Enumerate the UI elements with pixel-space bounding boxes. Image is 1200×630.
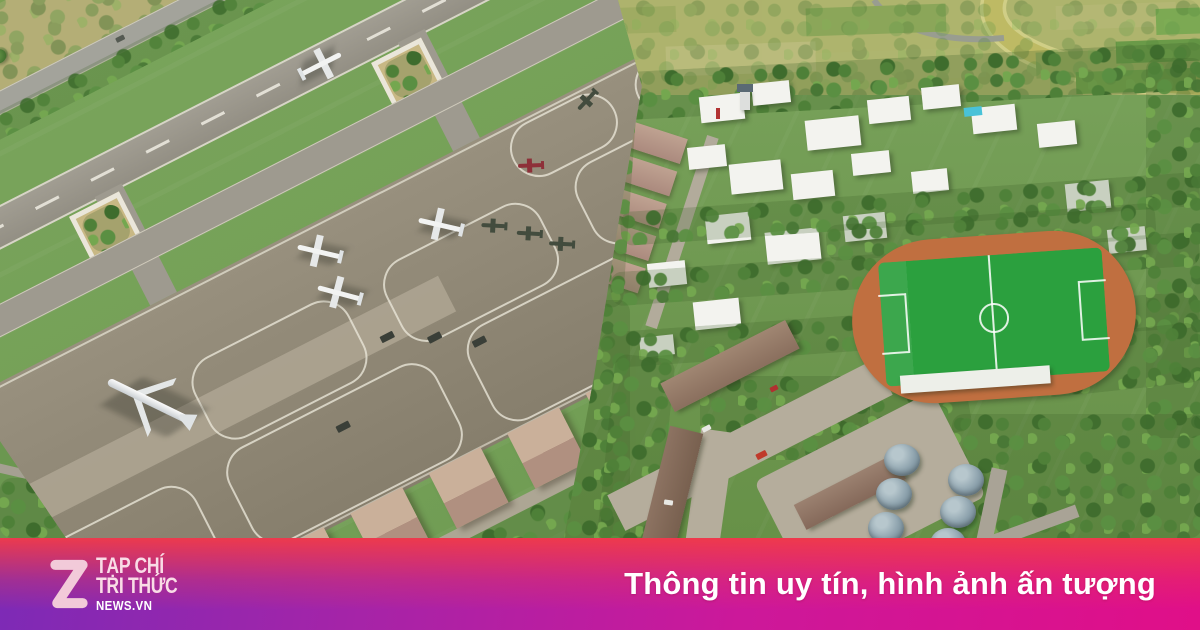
jet-fuselage bbox=[518, 163, 542, 168]
jet-tail bbox=[572, 240, 575, 248]
logo-text: TẠP CHÍ TRI THỨC NEWS.VN bbox=[96, 556, 198, 613]
jet-tail bbox=[540, 230, 543, 238]
fuel-tank bbox=[884, 444, 920, 476]
jet-tail bbox=[504, 222, 507, 230]
jet-icon bbox=[516, 225, 543, 242]
fuel-tank bbox=[876, 478, 912, 510]
znews-logo: TẠP CHÍ TRI THỨC NEWS.VN bbox=[49, 556, 198, 613]
fuel-tank bbox=[940, 496, 976, 528]
fuel-tank bbox=[948, 464, 984, 496]
fuel-tank bbox=[930, 528, 966, 538]
banner: TẠP CHÍ TRI THỨC NEWS.VN Thông tin uy tí… bbox=[0, 538, 1200, 630]
jet-tail bbox=[541, 161, 544, 169]
jet-icon bbox=[481, 217, 508, 234]
jet-fuselage bbox=[517, 231, 541, 236]
fuel-tank bbox=[868, 512, 904, 538]
logo-line2: TRI THỨC bbox=[96, 576, 177, 596]
logo-line3: NEWS.VN bbox=[96, 599, 190, 613]
tagline: Thông tin uy tín, hình ảnh ấn tượng bbox=[624, 566, 1156, 602]
social-share-card: TẠP CHÍ TRI THỨC NEWS.VN Thông tin uy tí… bbox=[0, 0, 1200, 630]
red-aircraft-icon bbox=[518, 157, 545, 174]
jet-fuselage bbox=[481, 223, 505, 228]
jet-fuselage bbox=[549, 241, 573, 246]
jet-icon bbox=[549, 235, 576, 252]
znews-z-icon bbox=[49, 557, 89, 611]
airport-render-photo bbox=[0, 0, 1200, 538]
